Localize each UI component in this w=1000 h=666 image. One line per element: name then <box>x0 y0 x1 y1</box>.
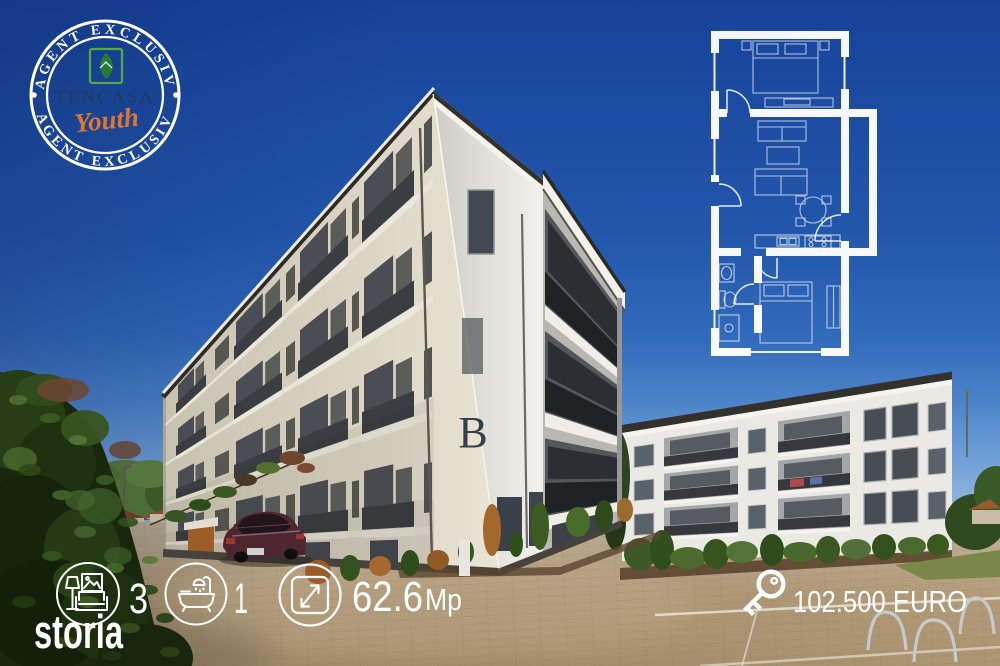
svg-text:Mp: Mp <box>425 582 462 617</box>
svg-text:B: B <box>458 408 487 457</box>
svg-text:TENCASA: TENCASA <box>55 87 155 107</box>
svg-text:3: 3 <box>129 575 148 623</box>
svg-text:1: 1 <box>234 575 248 623</box>
svg-text:102.500 EURO: 102.500 EURO <box>793 584 967 619</box>
svg-text:storia: storia <box>34 605 124 658</box>
svg-text:62.6: 62.6 <box>352 573 423 621</box>
